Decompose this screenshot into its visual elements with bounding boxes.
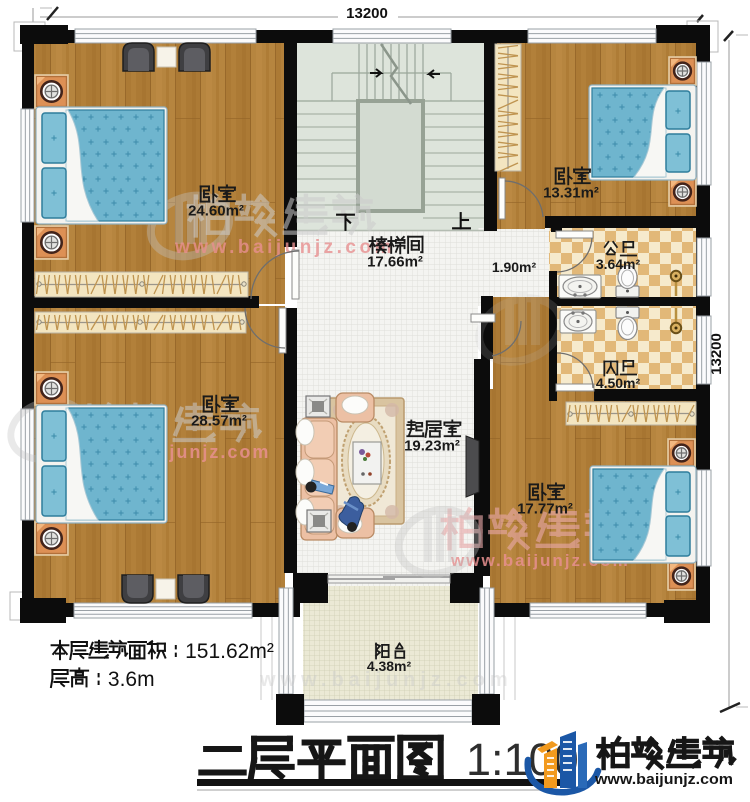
svg-text:13.31m²: 13.31m² <box>543 184 599 201</box>
svg-text:151.62m²: 151.62m² <box>185 640 274 663</box>
svg-text:www.baijunjz.com: www.baijunjz.com <box>594 771 733 788</box>
svg-text:1.90m²: 1.90m² <box>492 259 537 275</box>
svg-text:www.baijunjz.com: www.baijunjz.com <box>174 237 395 258</box>
svg-text:4.50m²: 4.50m² <box>596 375 641 391</box>
svg-text:3.6m: 3.6m <box>108 668 155 691</box>
svg-text:17.66m²: 17.66m² <box>367 253 423 270</box>
svg-text:28.57m²: 28.57m² <box>191 412 247 429</box>
svg-text:3.64m²: 3.64m² <box>596 256 641 272</box>
svg-text:24.60m²: 24.60m² <box>188 202 244 219</box>
svg-text:4.38m²: 4.38m² <box>367 658 412 674</box>
svg-text:13200: 13200 <box>346 5 388 22</box>
svg-text:17.77m²: 17.77m² <box>517 500 573 517</box>
svg-text:19.23m²: 19.23m² <box>404 437 460 454</box>
